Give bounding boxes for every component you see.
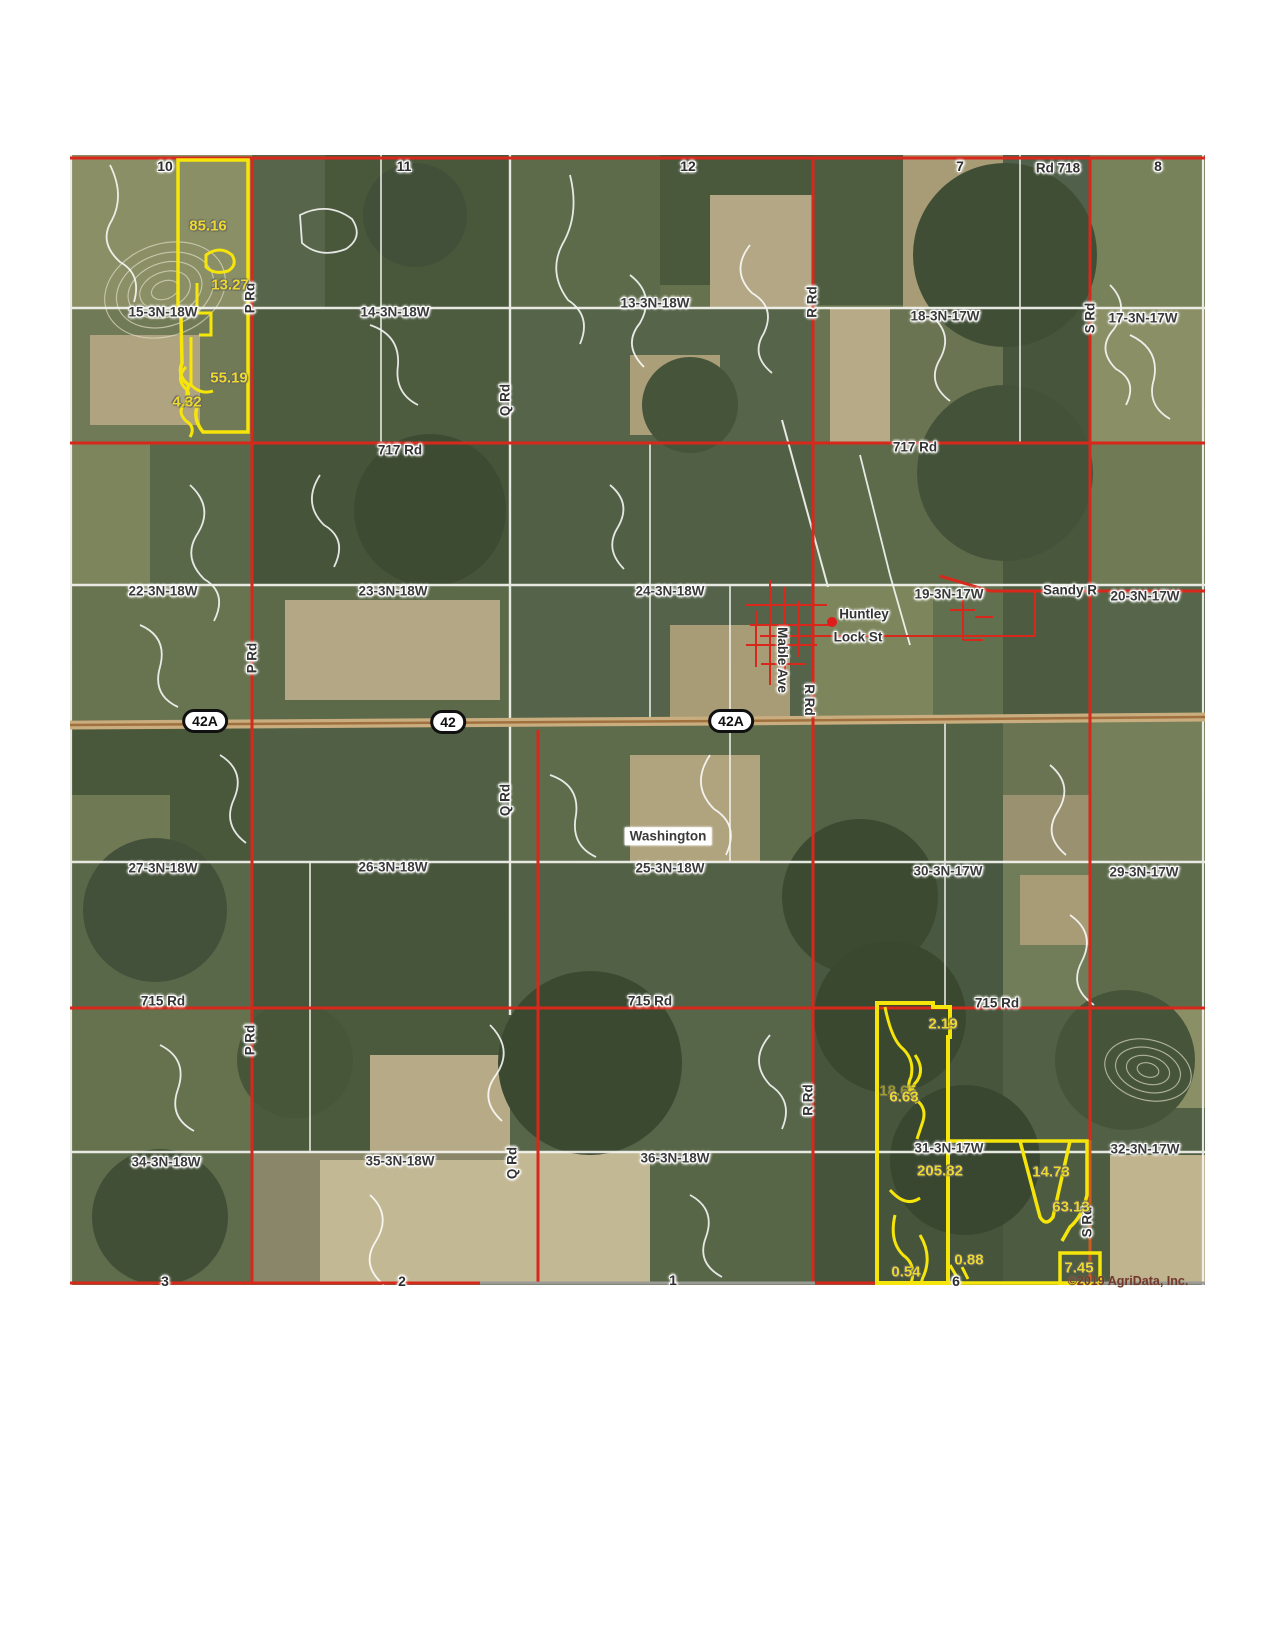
- road-label-vertical: Q Rd: [498, 384, 512, 416]
- section-label: 27-3N-18W: [128, 861, 197, 875]
- road-label: 715 Rd: [628, 994, 672, 1008]
- section-label: 19-3N-17W: [914, 587, 983, 601]
- town-label-boxed: Washington: [625, 827, 712, 845]
- acreage-label: 205.82: [917, 1164, 963, 1179]
- section-label: 24-3N-18W: [635, 584, 704, 598]
- road-label: 715 Rd: [141, 994, 185, 1008]
- section-label: 13-3N-18W: [620, 296, 689, 310]
- road-label: Rd 718: [1036, 161, 1080, 175]
- section-label: 29-3N-17W: [1109, 865, 1178, 879]
- section-label: 30-3N-17W: [913, 864, 982, 878]
- section-label: 14-3N-18W: [360, 305, 429, 319]
- road-label: 715 Rd: [975, 996, 1019, 1010]
- section-label: 20-3N-17W: [1110, 589, 1179, 603]
- section-label: 22-3N-18W: [128, 584, 197, 598]
- acreage-label: 14.73: [1032, 1165, 1070, 1180]
- section-label: 34-3N-18W: [131, 1155, 200, 1169]
- section-number: 12: [680, 159, 696, 173]
- section-label: 17-3N-17W: [1108, 311, 1177, 325]
- road-label-vertical: R Rd: [805, 286, 819, 318]
- acreage-label: 0.54: [891, 1265, 920, 1280]
- aerial-map: 15-3N-18W14-3N-18W13-3N-18W18-3N-17W17-3…: [70, 155, 1205, 1285]
- acreage-label: 6.63: [889, 1090, 918, 1105]
- road-label: 717 Rd: [893, 440, 937, 454]
- road-label-vertical: P Rd: [243, 1025, 257, 1056]
- acreage-label: 63.13: [1052, 1200, 1090, 1215]
- road-label-vertical: S Rd: [1083, 303, 1097, 334]
- section-number: 1: [669, 1273, 677, 1287]
- section-number: 8: [1154, 159, 1162, 173]
- section-number: 3: [161, 1274, 169, 1288]
- road-label-vertical: R Rd: [801, 1084, 815, 1116]
- section-label: 31-3N-17W: [914, 1141, 983, 1155]
- section-label: 18-3N-17W: [910, 309, 979, 323]
- section-number: 10: [157, 159, 173, 173]
- plat-map-page: 15-3N-18W14-3N-18W13-3N-18W18-3N-17W17-3…: [0, 0, 1275, 1650]
- acreage-label: 0.88: [954, 1253, 983, 1268]
- road-label-vertical: Q Rd: [505, 1147, 519, 1179]
- road-label: Sandy R: [1043, 583, 1097, 597]
- section-label: 25-3N-18W: [635, 861, 704, 875]
- acreage-label: 85.16: [189, 219, 227, 234]
- acreage-label: 13.27: [211, 278, 249, 293]
- road-label-vertical: P Rd: [245, 643, 259, 674]
- section-label: 35-3N-18W: [365, 1154, 434, 1168]
- section-number: 6: [952, 1274, 960, 1288]
- copyright-notice: ©2019 AgriData, Inc.: [1068, 1275, 1189, 1288]
- road-label-vertical: Q Rd: [498, 784, 512, 816]
- section-number: 2: [398, 1274, 406, 1288]
- section-number: 11: [397, 159, 412, 173]
- acreage-label: 2.19: [928, 1017, 957, 1032]
- road-label: Lock St: [834, 630, 883, 644]
- section-label: 32-3N-17W: [1110, 1142, 1179, 1156]
- highway-shield: 42A: [182, 709, 228, 733]
- section-number: 7: [956, 159, 964, 173]
- section-label: 23-3N-18W: [358, 584, 427, 598]
- highway-shield: 42: [430, 710, 466, 734]
- section-label: 15-3N-18W: [128, 305, 197, 319]
- highway-shield: 42A: [708, 709, 754, 733]
- town-label: Huntley: [839, 607, 889, 621]
- acreage-label: 4.32: [172, 395, 201, 410]
- section-label: 26-3N-18W: [358, 860, 427, 874]
- section-label: 36-3N-18W: [640, 1151, 709, 1165]
- label-layer: 15-3N-18W14-3N-18W13-3N-18W18-3N-17W17-3…: [70, 155, 1205, 1285]
- acreage-label: 55.19: [210, 371, 248, 386]
- road-label-vertical: Mable Ave: [775, 627, 789, 693]
- road-label-vertical: R Rd: [802, 684, 816, 716]
- road-label: 717 Rd: [378, 443, 422, 457]
